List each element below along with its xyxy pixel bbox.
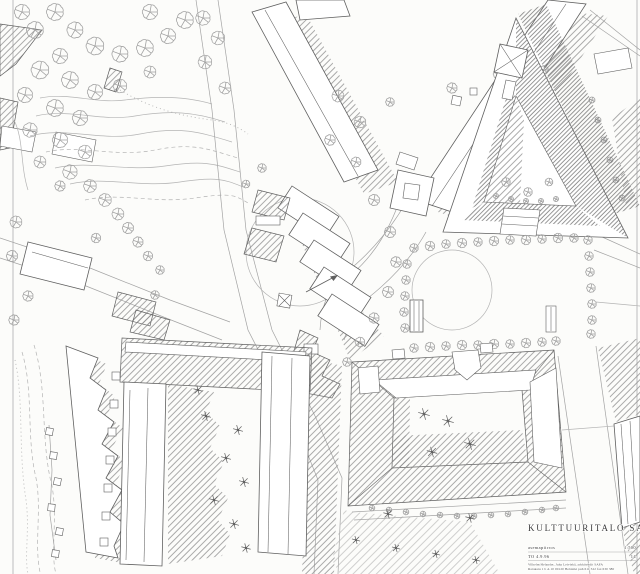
mid-left-buildings: [6, 216, 170, 340]
u-block: [100, 338, 342, 574]
plaza-tree-ring: [400, 233, 596, 352]
right-edge-buildings: [598, 338, 640, 574]
plaza-kiosk: [410, 300, 423, 332]
drawing-title: asemapiirros: [528, 545, 555, 550]
roof-light-square: [277, 293, 292, 308]
office-address-line-2: Ratakatu 1 b A 10 00120 Helsinki puh 611…: [528, 567, 614, 571]
post-row: [45, 428, 63, 558]
plaza-square: [400, 233, 596, 352]
site-plan-sheet: KULTTUURITALO SANDELS asemapiirros 1:500…: [0, 0, 640, 574]
culture-house-terraces: [278, 186, 379, 346]
site-plan-drawing: KULTTUURITALO SANDELS asemapiirros 1:500…: [0, 0, 640, 574]
bottom-left-blocks: [15, 338, 342, 574]
perimeter-block: [332, 343, 566, 574]
drawing-scale: 1:500: [624, 545, 636, 550]
title-block: KULTTUURITALO SANDELS asemapiirros 1:500…: [528, 523, 640, 571]
drawing-date: TO 4.9.96: [528, 554, 550, 559]
sheet-number: 14: [631, 554, 637, 559]
project-title: KULTTUURITALO SANDELS: [528, 523, 640, 533]
